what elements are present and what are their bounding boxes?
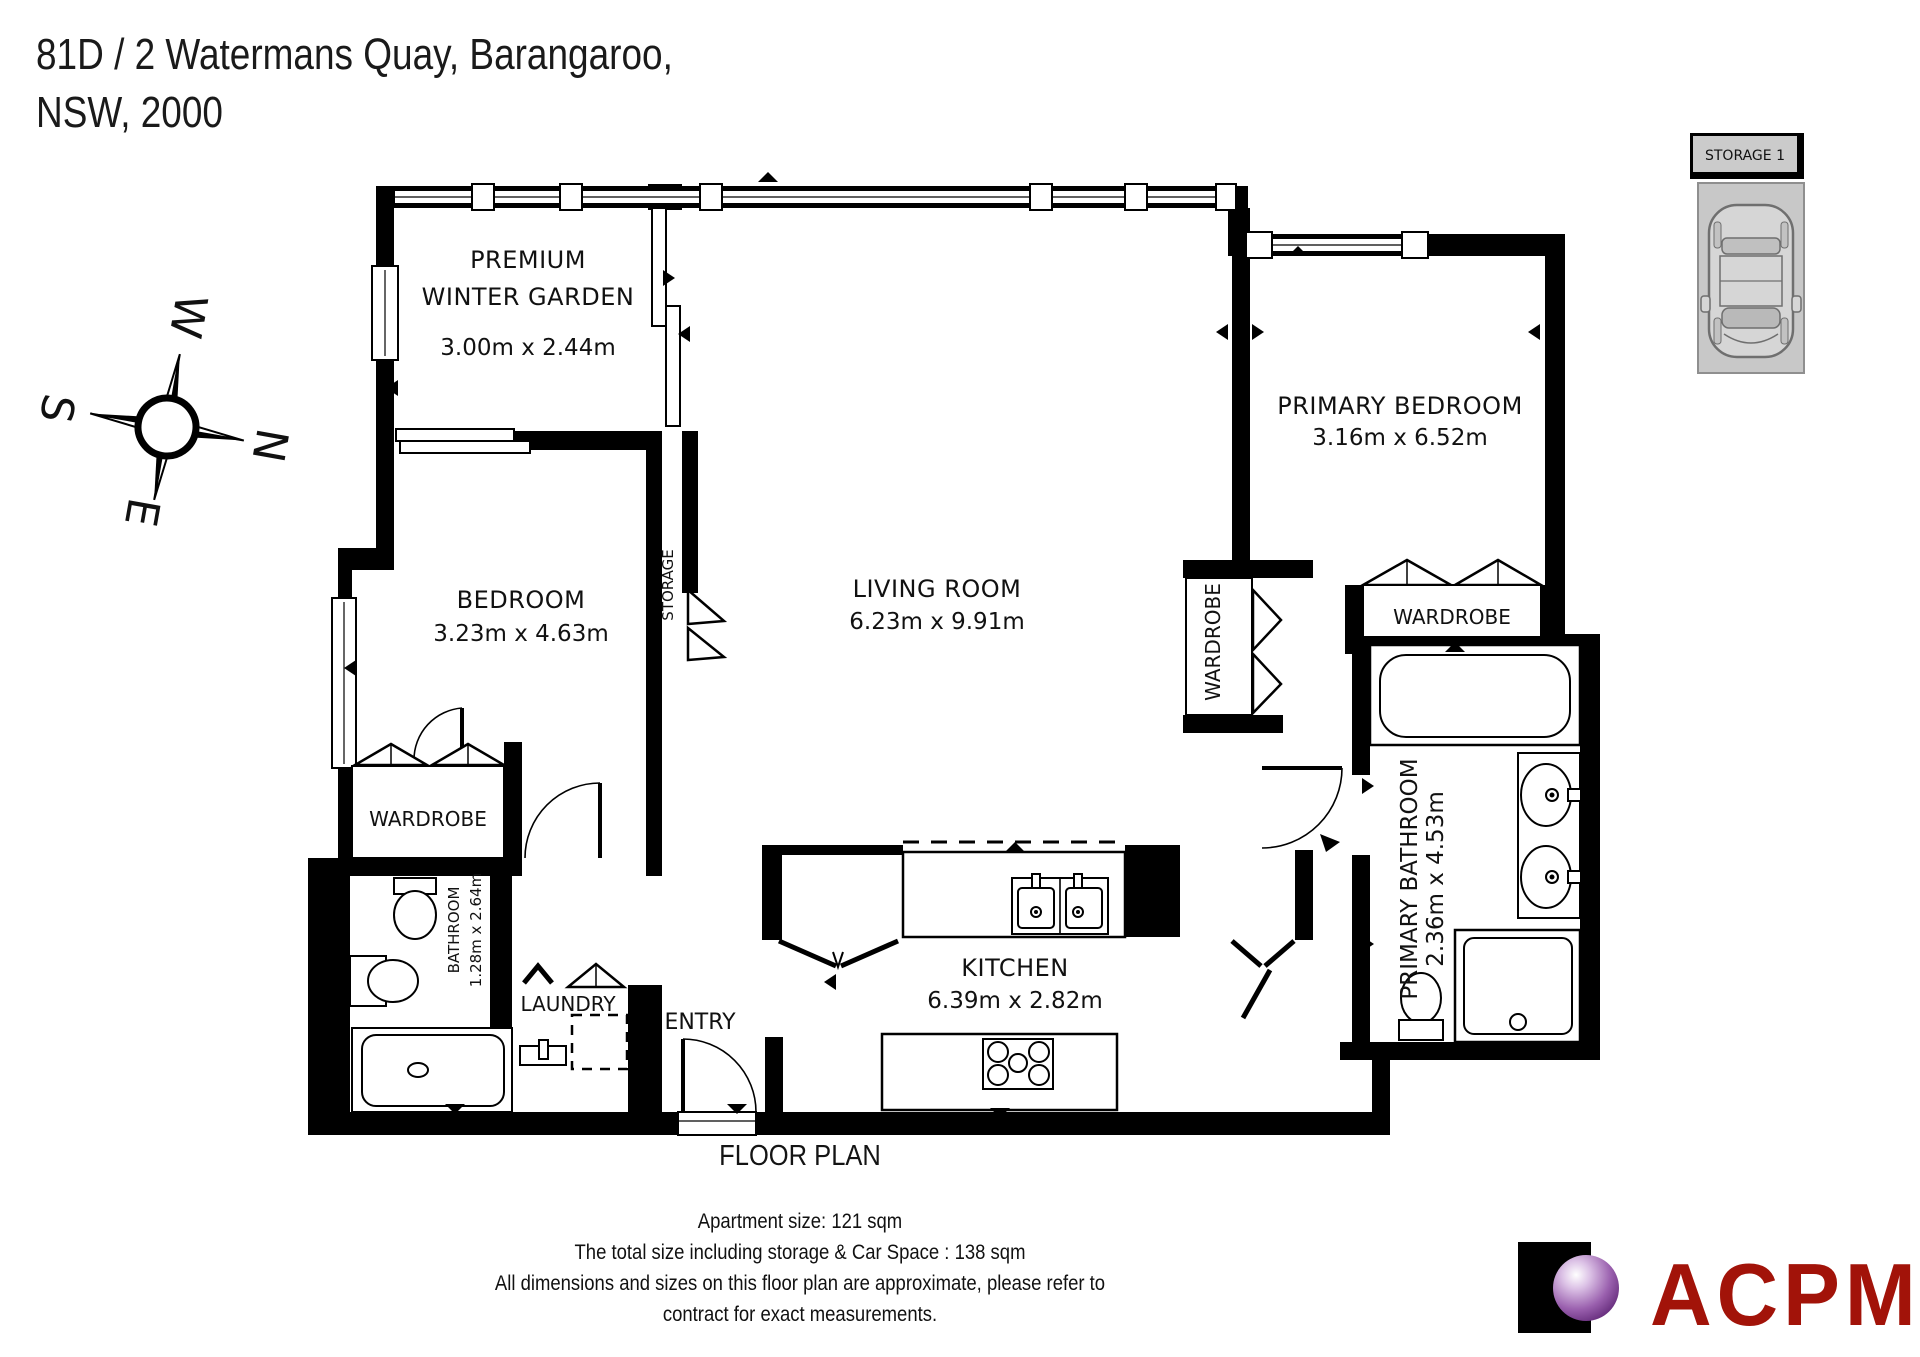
room-dims-primary-bedroom: 3.16m x 6.52m	[1312, 425, 1487, 451]
room-label-storage: STORAGE	[659, 549, 677, 620]
compass-north-label: N	[242, 425, 298, 466]
plan-caption: FLOOR PLAN	[413, 1140, 1187, 1173]
room-label-laundry: LAUNDRY	[520, 992, 616, 1016]
washer-space	[520, 1015, 627, 1069]
room-label-bathroom: BATHROOM	[445, 887, 463, 974]
door-primary-bedroom	[1262, 768, 1342, 848]
car-icon	[1701, 205, 1801, 357]
room-dims-bedroom: 3.23m x 4.63m	[433, 621, 608, 647]
storage-box-label: STORAGE 1	[1705, 148, 1785, 164]
bathtub	[1370, 645, 1580, 745]
footer-disclaimer-2: contract for exact measurements.	[413, 1299, 1187, 1330]
compass-rose-icon: N S W E	[29, 290, 298, 530]
sliding-doors	[396, 208, 680, 453]
door-entry	[678, 1039, 756, 1135]
floor-plan-page: 81D / 2 Watermans Quay, Barangaroo, NSW,…	[0, 0, 1920, 1357]
room-label-winter-garden-1: PREMIUM	[470, 246, 586, 274]
room-label-primary-bedroom: PRIMARY BEDROOM	[1277, 392, 1523, 420]
room-label-wardrobe-bedroom: WARDROBE	[369, 807, 487, 831]
room-label-entry: ENTRY	[664, 1010, 736, 1035]
room-label-living-room: LIVING ROOM	[853, 575, 1022, 603]
vanity-bathroom	[350, 956, 418, 1006]
footer-apartment-size: Apartment size: 121 sqm	[413, 1206, 1187, 1237]
kitchen-sink	[1012, 874, 1108, 934]
compass-east-label: E	[114, 494, 169, 530]
footer-disclaimer-1: All dimensions and sizes on this floor p…	[413, 1268, 1187, 1299]
car-space-block: STORAGE 1	[1690, 133, 1804, 373]
kitchen-island	[882, 1034, 1117, 1110]
acpm-logo-sphere-icon	[1553, 1255, 1619, 1321]
room-label-winter-garden-2: WINTER GARDEN	[422, 283, 635, 311]
room-dims-primary-bathroom: 2.36m x 4.53m	[1423, 791, 1449, 966]
shower-bathroom	[352, 1028, 512, 1112]
shower-primary	[1455, 930, 1580, 1042]
doors	[414, 708, 1342, 1135]
room-label-bedroom: BEDROOM	[457, 586, 586, 614]
room-label-wardrobe-hall: WARDROBE	[1201, 583, 1225, 701]
footer-notes: Apartment size: 121 sqm The total size i…	[413, 1206, 1187, 1330]
room-label-kitchen: KITCHEN	[961, 954, 1069, 982]
room-dims-living-room: 6.23m x 9.91m	[849, 609, 1024, 635]
compass-south-label: S	[29, 390, 84, 426]
room-label-wardrobe-primary: WARDROBE	[1393, 605, 1511, 629]
room-dims-kitchen: 6.39m x 2.82m	[927, 988, 1102, 1014]
toilet-bathroom	[394, 878, 436, 939]
double-vanity	[1518, 753, 1581, 918]
acpm-logo-text: ACPM	[1650, 1244, 1920, 1346]
footer-total-size: The total size including storage & Car S…	[413, 1237, 1187, 1268]
room-dims-winter-garden: 3.00m x 2.44m	[440, 335, 615, 361]
door-bedroom	[525, 783, 600, 858]
compass-west-label: W	[159, 290, 217, 342]
room-dims-bathroom: 1.28m x 2.64m	[467, 873, 485, 987]
room-label-primary-bathroom: PRIMARY BATHROOM	[1397, 758, 1423, 999]
